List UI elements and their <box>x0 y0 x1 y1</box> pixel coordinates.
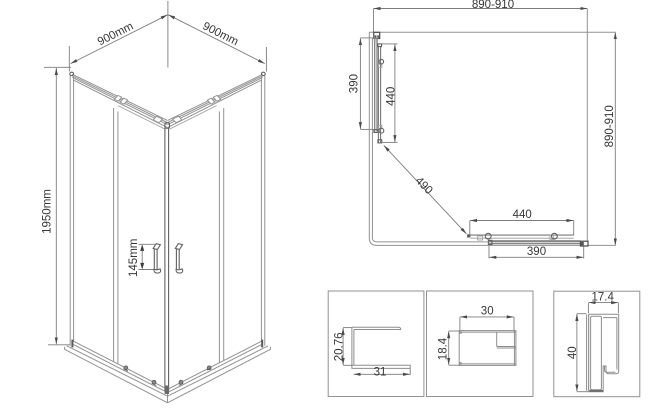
svg-text:30: 30 <box>481 306 494 318</box>
svg-text:390: 390 <box>527 246 546 258</box>
svg-text:20.76: 20.76 <box>334 333 346 362</box>
svg-text:890-910: 890-910 <box>472 0 514 11</box>
svg-text:440: 440 <box>385 87 397 106</box>
svg-text:40: 40 <box>567 346 579 359</box>
svg-text:1950mm: 1950mm <box>42 189 54 234</box>
svg-text:145mm: 145mm <box>128 239 140 277</box>
svg-text:18.4: 18.4 <box>438 337 450 360</box>
svg-text:890-910: 890-910 <box>604 105 616 147</box>
svg-text:390: 390 <box>349 74 361 93</box>
svg-text:17.4: 17.4 <box>592 291 615 303</box>
svg-text:31: 31 <box>374 367 387 379</box>
svg-text:440: 440 <box>513 209 532 221</box>
